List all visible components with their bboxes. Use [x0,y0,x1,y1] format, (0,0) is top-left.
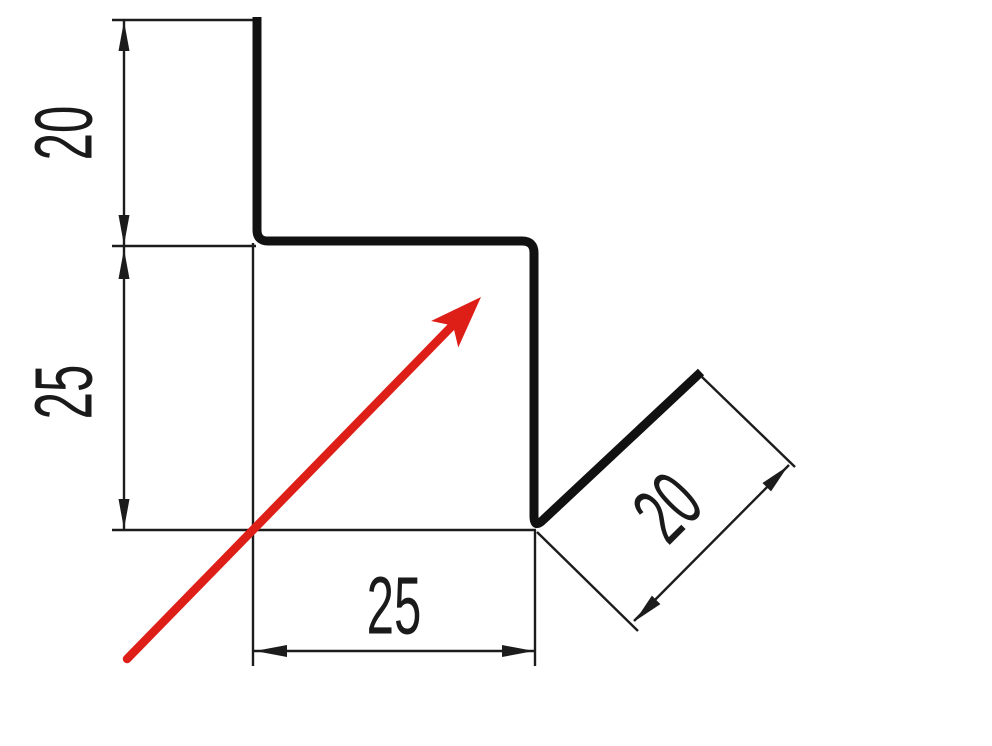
dimension-label-flange-length: 20 [616,456,719,559]
extension-line-flange-upper [702,377,795,467]
arrow-top20-down-icon [119,215,130,245]
arrow-left25-up-icon [119,249,130,279]
extension-line-flange-lower [537,532,638,631]
arrow-top20-up-icon [119,21,130,51]
dimension-label-top-height: 20 [19,106,110,161]
arrow-left25-down-icon [119,499,130,529]
dimension-label-left-height: 25 [19,365,110,420]
arrow-bottom25-left-icon [255,645,287,657]
sheet-metal-profile-outline [257,17,701,524]
dimension-label-bottom-width: 25 [367,561,422,652]
red-direction-arrow [127,284,495,659]
drawing-canvas: 20 25 25 20 [0,0,992,746]
arrow-bottom25-right-icon [502,645,534,657]
technical-drawing-svg: 20 25 25 20 [0,0,992,746]
